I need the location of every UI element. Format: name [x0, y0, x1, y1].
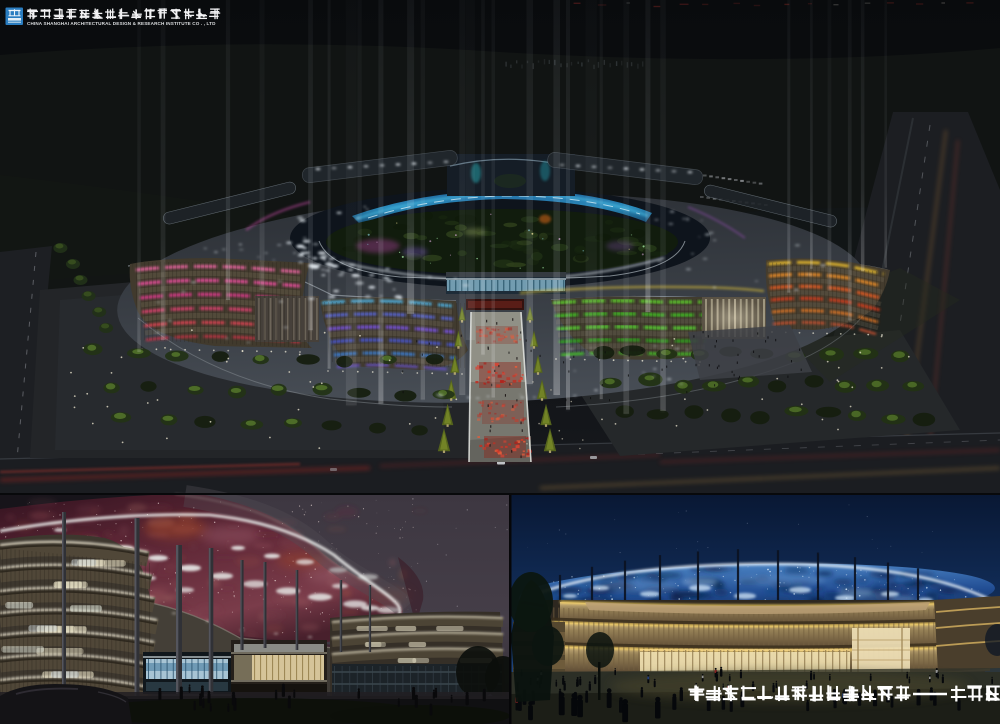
svg-text:CHINA SHANGHAI ARCHITECTURAL D: CHINA SHANGHAI ARCHITECTURAL DESIGN & RE…: [27, 21, 216, 26]
